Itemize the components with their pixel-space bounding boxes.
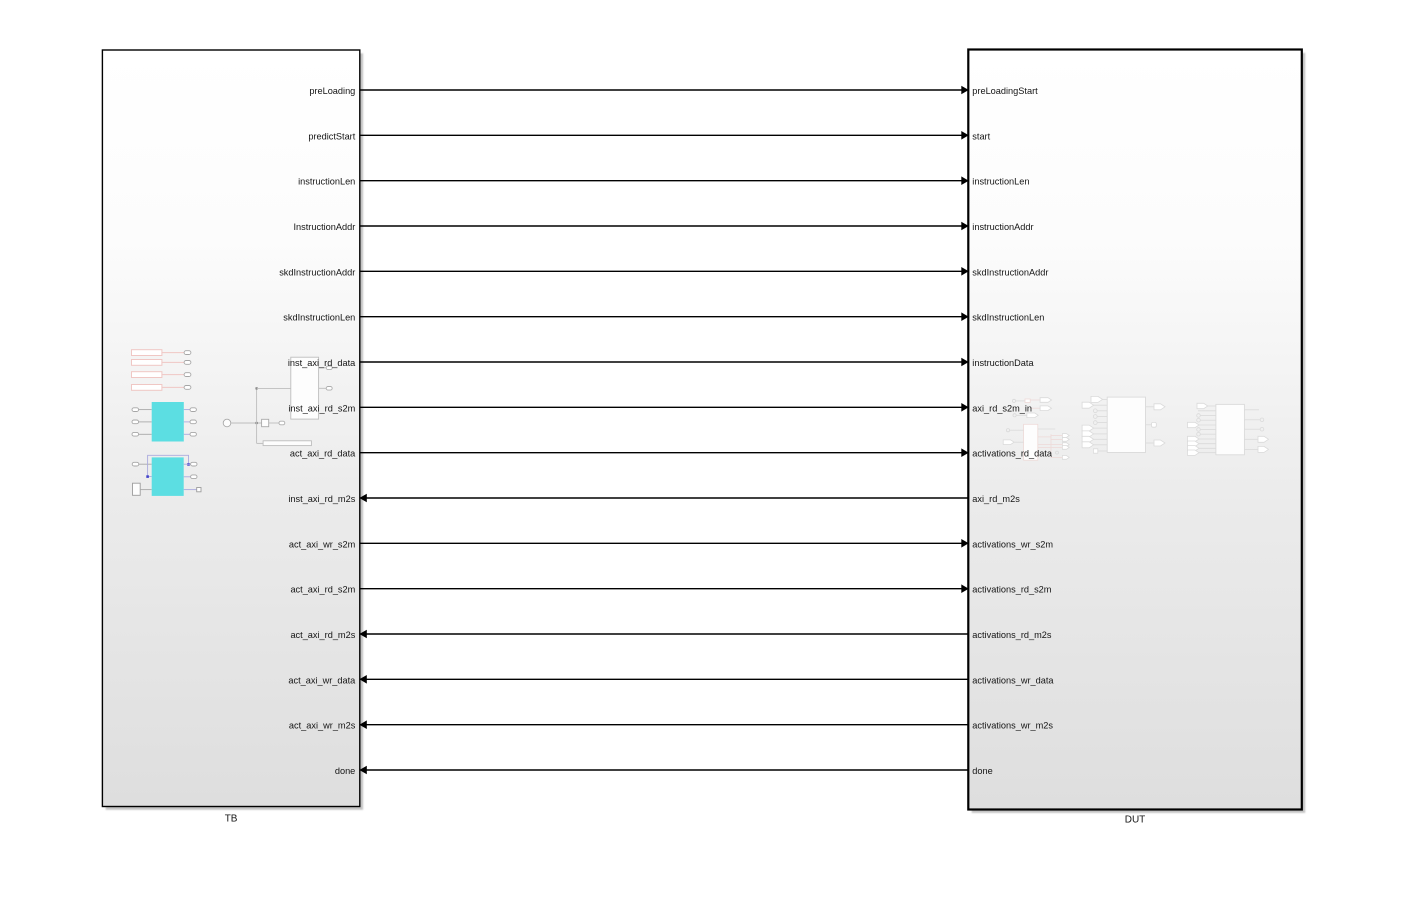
svg-text:act_axi_rd_data: act_axi_rd_data [290, 449, 356, 459]
svg-text:inst_axi_rd_s2m: inst_axi_rd_s2m [288, 403, 355, 413]
svg-text:DUT: DUT [1125, 815, 1146, 826]
svg-text:instructionLen: instructionLen [972, 177, 1029, 187]
svg-text:predictStart: predictStart [308, 131, 355, 141]
svg-text:preLoading: preLoading [309, 86, 355, 96]
svg-text:skdInstructionLen: skdInstructionLen [283, 313, 355, 323]
svg-text:skdInstructionAddr: skdInstructionAddr [279, 267, 355, 277]
svg-text:inst_axi_rd_data: inst_axi_rd_data [288, 358, 356, 368]
svg-text:activations_wr_s2m: activations_wr_s2m [972, 539, 1053, 549]
svg-text:activations_rd_m2s: activations_rd_m2s [972, 630, 1052, 640]
svg-text:skdInstructionAddr: skdInstructionAddr [972, 267, 1048, 277]
svg-text:act_axi_wr_data: act_axi_wr_data [288, 675, 356, 685]
svg-text:done: done [335, 766, 355, 776]
svg-text:preLoadingStart: preLoadingStart [972, 86, 1038, 96]
svg-text:act_axi_rd_s2m: act_axi_rd_s2m [290, 585, 355, 595]
svg-text:instructionLen: instructionLen [298, 177, 355, 187]
svg-text:axi_rd_m2s: axi_rd_m2s [972, 494, 1020, 504]
svg-text:activations_wr_data: activations_wr_data [972, 675, 1054, 685]
svg-text:instructionAddr: instructionAddr [972, 222, 1033, 232]
svg-text:TB: TB [225, 814, 238, 825]
svg-text:InstructionAddr: InstructionAddr [294, 222, 356, 232]
svg-text:skdInstructionLen: skdInstructionLen [972, 313, 1044, 323]
svg-text:activations_rd_data: activations_rd_data [972, 449, 1053, 459]
svg-text:act_axi_wr_m2s: act_axi_wr_m2s [289, 721, 356, 731]
svg-text:instructionData: instructionData [972, 358, 1034, 368]
svg-text:axi_rd_s2m_in: axi_rd_s2m_in [972, 403, 1032, 413]
svg-text:done: done [972, 766, 992, 776]
svg-text:activations_wr_m2s: activations_wr_m2s [972, 721, 1053, 731]
svg-text:activations_rd_s2m: activations_rd_s2m [972, 585, 1051, 595]
svg-text:start: start [972, 131, 990, 141]
svg-text:act_axi_rd_m2s: act_axi_rd_m2s [290, 630, 355, 640]
svg-text:inst_axi_rd_m2s: inst_axi_rd_m2s [288, 494, 355, 504]
svg-text:act_axi_wr_s2m: act_axi_wr_s2m [289, 539, 356, 549]
